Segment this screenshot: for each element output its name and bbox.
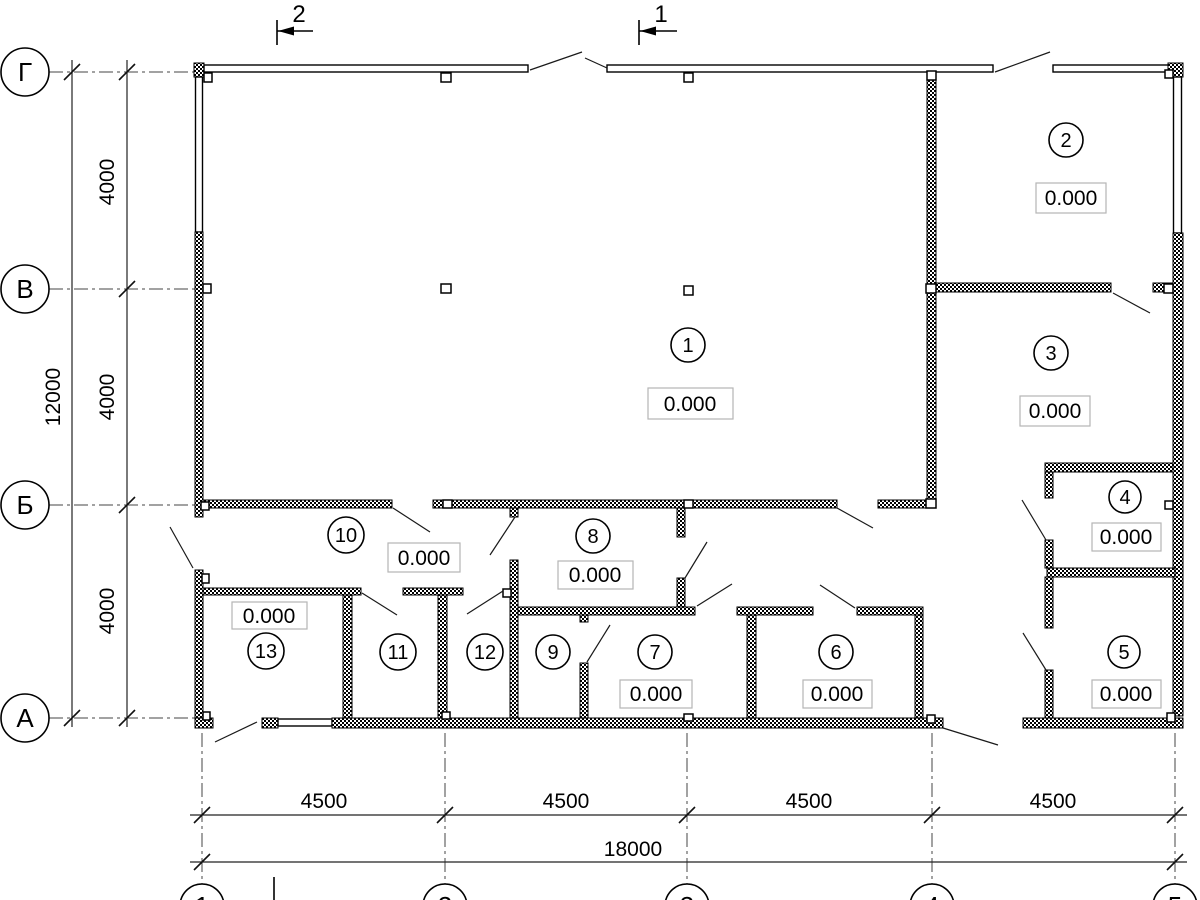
door-leaf (685, 542, 707, 578)
room-10-number: 10 (335, 525, 357, 547)
axis-bottom-3: 3 (680, 891, 694, 900)
dim-left-segment-0: 4000 (96, 159, 119, 206)
section-1-label: 1 (654, 1, 667, 28)
wall-room13-11 (343, 595, 352, 718)
window-strip (1174, 77, 1182, 233)
column-marker (503, 589, 511, 597)
wall-room4-5 (1047, 568, 1175, 577)
wall-room2-3 (936, 283, 1111, 292)
axis-left-v: В (16, 274, 33, 304)
column-marker (926, 499, 936, 508)
axis-bottom-2: 2 (438, 891, 452, 900)
wall-room12-9 (510, 560, 518, 718)
axis-left-a: А (16, 703, 34, 733)
room-12-number: 12 (474, 642, 496, 664)
window-strip (278, 719, 332, 726)
door-leaf (1113, 293, 1150, 313)
door-leaf (995, 52, 1050, 72)
wall-axis-b (878, 500, 927, 508)
dim-left-segment-1: 4000 (96, 374, 119, 421)
wall-room4-left (1045, 472, 1053, 498)
room-6-number: 6 (830, 642, 841, 664)
column-marker (684, 714, 693, 721)
door-leaf (1022, 500, 1046, 540)
wall-room6-right (915, 615, 923, 718)
column-marker (684, 73, 693, 82)
room-10-elevation: 0.000 (398, 547, 451, 570)
floor-plan-drawing: 1 2 3 4 5 6 7 8 9 10 11 12 13 0.000 0.00… (0, 0, 1200, 900)
room-4-number: 4 (1119, 487, 1130, 509)
wall-segment (1023, 718, 1183, 728)
window-strip (204, 65, 528, 72)
wall-axis-b (433, 500, 837, 508)
wall-room6-7 (747, 615, 756, 718)
room-1-elevation: 0.000 (664, 393, 717, 416)
axis-left-b: Б (16, 490, 33, 520)
column-marker (927, 715, 935, 723)
room-3-elevation: 0.000 (1029, 400, 1082, 423)
door-leaf (393, 508, 430, 532)
wall-room9-7 (580, 663, 588, 718)
room-6-elevation: 0.000 (811, 683, 864, 706)
room-13-number: 13 (255, 641, 277, 663)
section-marks: 2 1 (274, 1, 677, 900)
column-marker (442, 712, 450, 719)
wall-corner (194, 63, 204, 77)
column-marker (684, 286, 693, 295)
column-marker (202, 574, 209, 583)
door-leaf (215, 722, 257, 742)
wall-segment (195, 570, 203, 728)
wall-room5-left (1045, 577, 1053, 628)
door-leaf (585, 58, 607, 68)
wall-segment (195, 232, 203, 517)
door-leaf (587, 625, 610, 662)
door-leaf (1023, 633, 1046, 670)
column-marker (203, 712, 210, 720)
wall-room11-12 (438, 595, 447, 718)
wall-stub (510, 508, 518, 517)
door-leaf (362, 593, 397, 615)
door-leaf (467, 591, 503, 614)
column-marker (443, 500, 452, 508)
door-leaf (530, 52, 582, 70)
wall-room5-left (1045, 670, 1053, 718)
dimension-lines: 12000 4000 4000 4000 4500 4500 4500 4500… (42, 60, 1187, 870)
wall-segment (262, 718, 278, 728)
room-4-elevation: 0.000 (1100, 526, 1153, 549)
door-leaf (170, 527, 193, 568)
wall-segment (332, 718, 943, 728)
door-leaf (490, 517, 515, 555)
column-marker (684, 500, 693, 508)
column-marker (1167, 713, 1175, 722)
room-3-number: 3 (1045, 343, 1056, 365)
wall-room4-top (1045, 463, 1173, 472)
wall-room11-12-cap (403, 588, 463, 595)
wall-segment (1173, 233, 1183, 716)
room-5-elevation: 0.000 (1100, 683, 1153, 706)
wall-axis-b (203, 500, 392, 508)
column-marker (201, 502, 209, 510)
dim-left-total: 12000 (42, 368, 65, 426)
room-9-number: 9 (547, 642, 558, 664)
room-2-number: 2 (1060, 130, 1071, 152)
room-2-elevation: 0.000 (1045, 187, 1098, 210)
section-2-label: 2 (292, 1, 305, 28)
axis-left-g: Г (18, 57, 32, 87)
window-strip (1053, 65, 1173, 72)
column-marker (1165, 70, 1173, 78)
wall-room6-top (737, 607, 813, 615)
axis-bottom-1: 1 (195, 891, 209, 900)
axis-bubbles: Г В Б А 1 2 3 4 5 (1, 48, 1197, 900)
wall-room9-7-top (518, 607, 695, 615)
room-7-number: 7 (649, 642, 660, 664)
dim-bottom-total: 18000 (604, 838, 662, 861)
room-8-elevation: 0.000 (569, 564, 622, 587)
room-13-elevation: 0.000 (243, 605, 296, 628)
room-5-number: 5 (1118, 642, 1129, 664)
wall-stub (580, 615, 588, 622)
axis-bottom-5: 5 (1168, 891, 1182, 900)
wall-stub (677, 508, 685, 537)
room-8-number: 8 (587, 526, 598, 548)
column-marker (441, 284, 451, 293)
column-marker (441, 73, 451, 82)
window-strip (196, 77, 203, 232)
column-marker (1165, 501, 1173, 509)
room-11-number: 11 (388, 642, 409, 664)
column-marker (204, 73, 212, 82)
wall-room13-top (203, 588, 361, 595)
door-leaf (820, 585, 855, 608)
column-marker (926, 284, 936, 293)
dim-bottom-segment-0: 4500 (301, 790, 348, 813)
floor-plan-page: 1 2 3 4 5 6 7 8 9 10 11 12 13 0.000 0.00… (0, 0, 1200, 900)
axis-bottom-4: 4 (925, 891, 939, 900)
door-leaf (943, 728, 998, 745)
dim-bottom-segment-3: 4500 (1030, 790, 1077, 813)
grid-lines (49, 72, 1175, 884)
wall-room6-top (857, 607, 923, 615)
dim-bottom-segment-2: 4500 (786, 790, 833, 813)
column-marker (1164, 284, 1173, 293)
dim-left-segment-2: 4000 (96, 588, 119, 635)
column-marker (203, 284, 211, 293)
room-7-elevation: 0.000 (630, 683, 683, 706)
column-marker (927, 71, 936, 80)
dim-bottom-segment-1: 4500 (543, 790, 590, 813)
door-leaf (837, 508, 873, 528)
wall-stub (677, 578, 685, 607)
wall-room4-left (1045, 540, 1053, 568)
elevation-marks: 0.000 0.000 0.000 0.000 0.000 0.000 0.00… (232, 183, 1161, 708)
door-leaf (697, 584, 732, 606)
room-1-number: 1 (682, 335, 693, 357)
